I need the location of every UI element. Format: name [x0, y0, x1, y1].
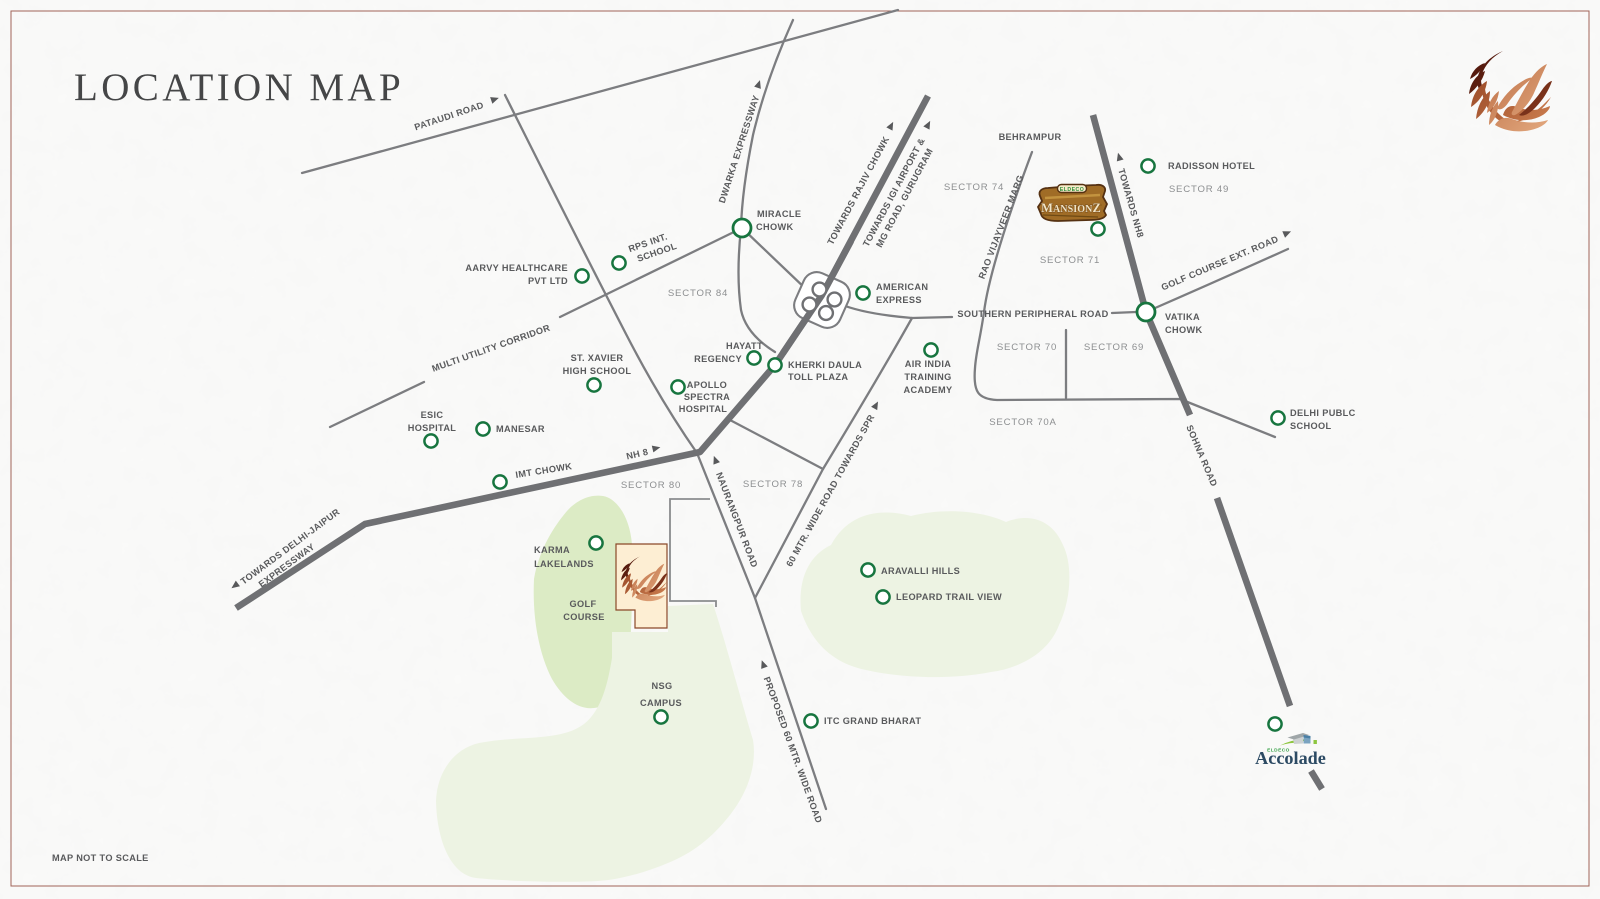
- svg-text:REGENCY: REGENCY: [694, 354, 742, 364]
- svg-text:HOSPITAL: HOSPITAL: [408, 423, 457, 433]
- svg-text:RADISSON HOTEL: RADISSON HOTEL: [1168, 161, 1255, 171]
- svg-text:SOUTHERN PERIPHERAL ROAD: SOUTHERN PERIPHERAL ROAD: [957, 309, 1108, 319]
- svg-text:BEHRAMPUR: BEHRAMPUR: [999, 132, 1062, 142]
- svg-text:MANSIONZ: MANSIONZ: [1041, 201, 1101, 215]
- svg-text:LOCATION MAP: LOCATION MAP: [74, 66, 404, 109]
- svg-text:SECTOR 49: SECTOR 49: [1169, 184, 1229, 195]
- svg-text:CHOWK: CHOWK: [756, 222, 793, 232]
- svg-text:ARAVALLI HILLS: ARAVALLI HILLS: [881, 566, 960, 576]
- svg-text:HAYATT: HAYATT: [726, 341, 763, 351]
- svg-text:TRAINING: TRAINING: [904, 372, 951, 382]
- svg-text:ESIC: ESIC: [421, 410, 444, 420]
- svg-text:TOLL PLAZA: TOLL PLAZA: [788, 372, 848, 382]
- svg-text:MAP NOT TO SCALE: MAP NOT TO SCALE: [52, 853, 149, 863]
- svg-text:GOLF: GOLF: [570, 599, 597, 609]
- svg-text:APOLLO: APOLLO: [687, 380, 727, 390]
- svg-text:NSG: NSG: [652, 681, 673, 691]
- svg-text:SECTOR 71: SECTOR 71: [1040, 255, 1100, 266]
- svg-text:ACADEMY: ACADEMY: [904, 385, 953, 395]
- svg-text:SECTOR 74: SECTOR 74: [944, 182, 1004, 193]
- svg-text:DELHI PUBLC: DELHI PUBLC: [1290, 408, 1356, 418]
- svg-text:SECTOR 70: SECTOR 70: [997, 342, 1057, 353]
- svg-text:KHERKI DAULA: KHERKI DAULA: [788, 360, 862, 370]
- svg-text:MANESAR: MANESAR: [496, 424, 545, 434]
- svg-text:VATIKA: VATIKA: [1165, 312, 1200, 322]
- svg-text:ITC GRAND BHARAT: ITC GRAND BHARAT: [824, 716, 921, 726]
- svg-text:Accolade: Accolade: [1255, 748, 1326, 768]
- svg-text:PVT LTD: PVT LTD: [528, 276, 568, 286]
- svg-text:SECTOR 70A: SECTOR 70A: [989, 417, 1057, 428]
- svg-text:SECTOR 69: SECTOR 69: [1084, 342, 1144, 353]
- svg-text:KARMA: KARMA: [534, 545, 570, 555]
- svg-text:AARVY HEALTHCARE: AARVY HEALTHCARE: [465, 263, 568, 273]
- svg-text:SECTOR 80: SECTOR 80: [621, 480, 681, 491]
- svg-text:EXPRESS: EXPRESS: [876, 295, 922, 305]
- svg-text:CAMPUS: CAMPUS: [640, 698, 682, 708]
- svg-text:AMERICAN: AMERICAN: [876, 282, 928, 292]
- svg-text:AIR INDIA: AIR INDIA: [905, 359, 952, 369]
- svg-text:LEOPARD TRAIL VIEW: LEOPARD TRAIL VIEW: [896, 592, 1002, 602]
- svg-text:ST. XAVIER: ST. XAVIER: [571, 353, 624, 363]
- svg-text:SCHOOL: SCHOOL: [1290, 421, 1331, 431]
- svg-text:ELDECO: ELDECO: [1060, 187, 1085, 193]
- svg-text:MIRACLE: MIRACLE: [757, 209, 801, 219]
- svg-text:SPECTRA: SPECTRA: [684, 392, 730, 402]
- svg-text:SECTOR 78: SECTOR 78: [743, 479, 803, 490]
- svg-text:COURSE: COURSE: [563, 612, 604, 622]
- svg-text:CHOWK: CHOWK: [1165, 325, 1202, 335]
- svg-text:HOSPITAL: HOSPITAL: [679, 404, 728, 414]
- svg-text:HIGH SCHOOL: HIGH SCHOOL: [563, 366, 632, 376]
- svg-text:LAKELANDS: LAKELANDS: [534, 559, 594, 569]
- svg-text:SECTOR 84: SECTOR 84: [668, 288, 728, 299]
